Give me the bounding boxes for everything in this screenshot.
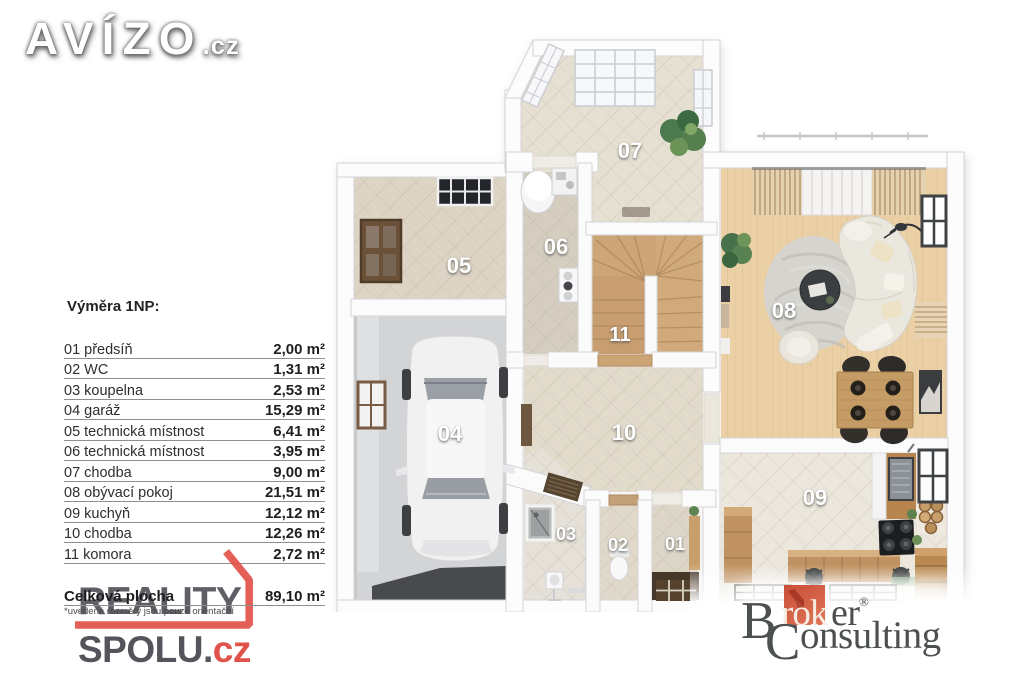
svg-text:onsulting: onsulting <box>800 614 941 657</box>
svg-text:®: ® <box>859 594 869 609</box>
svg-text:C: C <box>765 613 800 671</box>
